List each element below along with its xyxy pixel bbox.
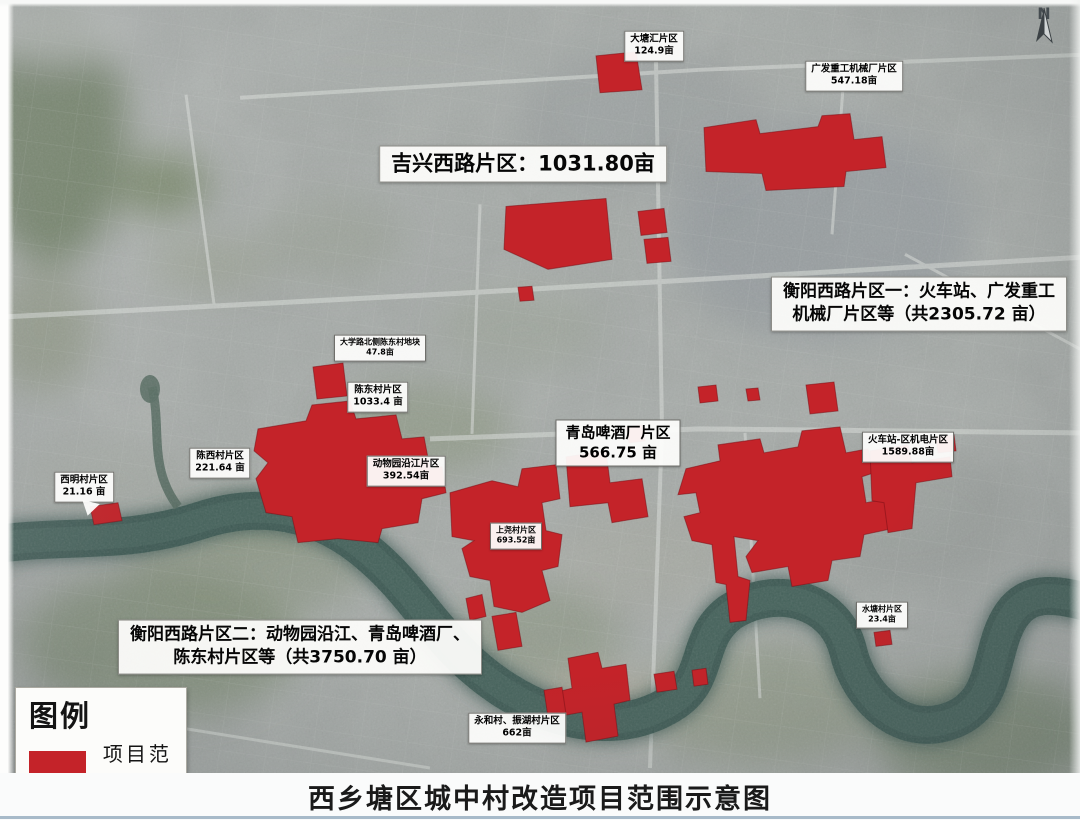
- region-area: 392.54亩: [373, 471, 440, 483]
- region-area: 662亩: [474, 728, 560, 740]
- region-label-ximingcun: 西明村片区 21.16 亩: [54, 472, 114, 503]
- region-label-chendongcun: 陈东村片区 1033.4 亩: [347, 382, 408, 413]
- region-label-guangfa-heavy-industry: 广发重工机械厂片区 547.18亩: [805, 61, 903, 92]
- region-area: 23.4亩: [862, 615, 902, 625]
- region-name: 广发重工机械厂片区: [811, 64, 897, 76]
- region-label-datanghui: 大塘汇片区 124.9亩: [624, 31, 684, 62]
- legend-item-label: 项目范围: [103, 738, 186, 773]
- callout-line: 衡阳西路片区一：火车站、广发重工: [783, 281, 1055, 304]
- region-area: 221.64 亩: [195, 463, 244, 475]
- region-area: 124.9亩: [630, 46, 678, 58]
- region-name: 陈东村片区: [353, 385, 402, 397]
- region-name: 水塘村片区: [862, 605, 902, 615]
- legend-project-swatch: [29, 751, 86, 774]
- legend: 图例 项目范围: [15, 687, 187, 773]
- region-name: 青岛啤酒厂片区: [565, 424, 670, 444]
- region-area: 693.52亩: [496, 536, 536, 546]
- region-area: 547.18亩: [811, 76, 897, 88]
- region-name: 火车站-区机电片区: [868, 435, 948, 447]
- map-poster: 大塘汇片区 124.9亩 广发重工机械厂片区 547.18亩 大学路北侧陈东村地…: [0, 0, 1080, 820]
- region-name: 动物园沿江片区: [373, 459, 440, 471]
- region-name: 西明村片区: [60, 475, 108, 487]
- callout-line: 衡阳西路片区二：动物园沿江、青岛啤酒厂、: [130, 624, 470, 647]
- region-label-shangyaocun: 上尧村片区 693.52亩: [490, 523, 542, 550]
- callout-hengyang-west-road-2: 衡阳西路片区二：动物园沿江、青岛啤酒厂、 陈东村片区等（共3750.70 亩）: [118, 620, 482, 675]
- compass-needle-icon: [1032, 6, 1056, 46]
- callout-line: 吉兴西路片区：1031.80亩: [391, 150, 655, 179]
- callout-line: 陈东村片区等（共3750.70 亩）: [130, 647, 470, 670]
- callout-line: 机械厂片区等（共2305.72 亩）: [783, 304, 1055, 327]
- region-label-railway-station-area: 火车站-区机电片区 1589.88亩: [862, 432, 954, 463]
- region-area: 566.75 亩: [565, 443, 670, 463]
- region-label-chenxicun: 陈西村片区 221.64 亩: [189, 448, 250, 479]
- region-label-yonghecun-zhenhucun: 永和村、振湖村片区 662亩: [468, 713, 566, 744]
- region-name: 大学路北侧陈东村地块: [340, 338, 420, 348]
- satellite-map: 大塘汇片区 124.9亩 广发重工机械厂片区 547.18亩 大学路北侧陈东村地…: [0, 0, 1080, 773]
- region-label-daxue-road-chendong-plot: 大学路北侧陈东村地块 47.8亩: [334, 335, 426, 362]
- map-title: 西乡塘区城中村改造项目范围示意图: [308, 777, 772, 816]
- region-label-shuitangcun: 水塘村片区 23.4亩: [856, 602, 908, 629]
- map-title-bar: 西乡塘区城中村改造项目范围示意图: [0, 773, 1080, 820]
- region-name: 永和村、振湖村片区: [474, 716, 560, 728]
- region-area: 47.8亩: [340, 348, 420, 358]
- region-area: 21.16 亩: [60, 487, 108, 499]
- region-name: 大塘汇片区: [630, 34, 678, 46]
- region-name: 陈西村片区: [195, 451, 244, 463]
- callout-hengyang-west-road-1: 衡阳西路片区一：火车站、广发重工 机械厂片区等（共2305.72 亩）: [771, 277, 1067, 332]
- region-area: 1589.88亩: [868, 447, 948, 459]
- region-area: 1033.4 亩: [353, 397, 402, 409]
- legend-heading: 图例: [29, 693, 186, 735]
- callout-jixing-west-road: 吉兴西路片区：1031.80亩: [379, 146, 667, 183]
- compass-north: N: [1022, 6, 1066, 22]
- region-label-zoo-riverside: 动物园沿江片区 392.54亩: [367, 456, 446, 487]
- region-label-qingdao-brewery: 青岛啤酒厂片区 566.75 亩: [555, 420, 680, 467]
- region-name: 上尧村片区: [496, 526, 536, 536]
